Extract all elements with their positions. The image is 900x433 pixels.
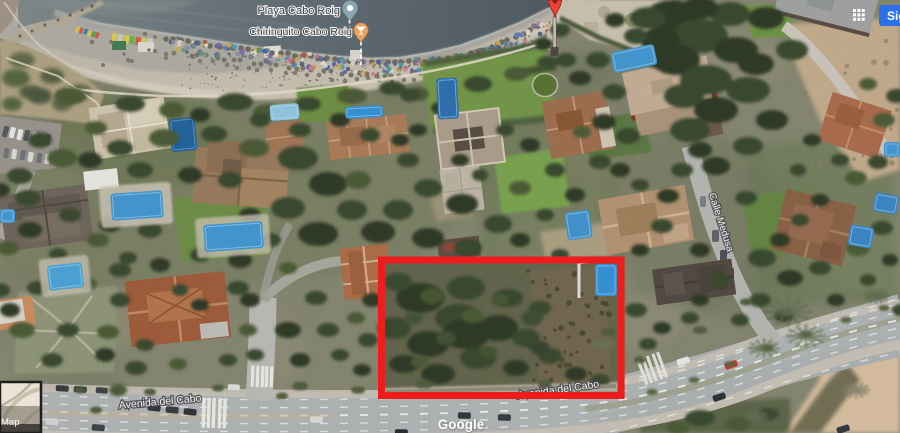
- svg-text:Sig: Sig: [887, 9, 900, 23]
- svg-text:Map: Map: [1, 417, 19, 428]
- svg-text:Google: Google: [438, 417, 485, 432]
- svg-text:Playa Cabo Roig: Playa Cabo Roig: [257, 5, 340, 17]
- svg-text:Chiringuito Cabo Roig: Chiringuito Cabo Roig: [249, 26, 352, 38]
